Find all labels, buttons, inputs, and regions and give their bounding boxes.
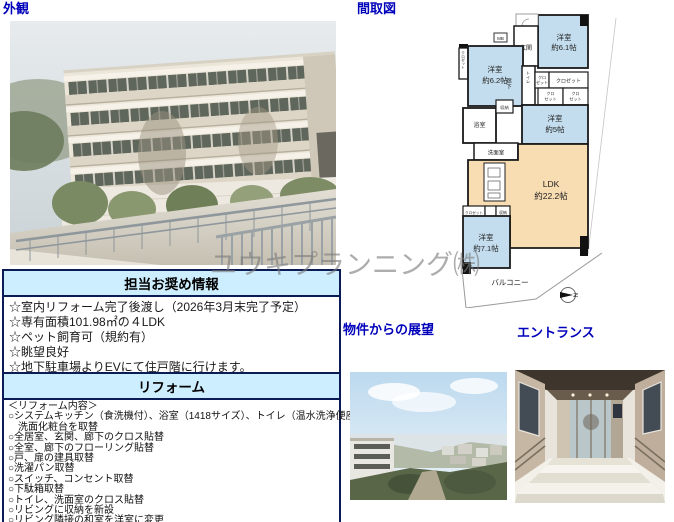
side-panel-left	[557, 400, 570, 458]
kitchen-counter	[484, 163, 505, 201]
porch	[516, 14, 538, 26]
closet-wide-label: クロゼット	[556, 78, 581, 85]
recommend-item: ☆専有面積101.98㎡の４LDK	[9, 315, 334, 330]
site-boundary	[588, 18, 616, 254]
entrance-photo	[515, 370, 665, 503]
right-window	[643, 382, 661, 434]
watermark: ユウキプランニング㈱	[210, 243, 480, 282]
svg-text:収納: 収納	[500, 104, 508, 111]
recommend-list: ☆室内リフォーム完了後渡し（2026年3月末完了予定） ☆専有面積101.98㎡…	[4, 297, 339, 377]
bathroom-label: 浴室	[473, 121, 485, 129]
hallway-label: 廊下	[505, 77, 512, 91]
exterior-photo	[10, 21, 336, 265]
ldk-size: 約22.2帖	[534, 191, 568, 201]
recommend-item: ☆室内リフォーム完了後渡し（2026年3月末完了予定）	[9, 300, 334, 315]
recommend-box: 担当お奨め情報 ☆室内リフォーム完了後渡し（2026年3月末完了予定） ☆専有面…	[2, 269, 341, 379]
mb-label: MB	[497, 36, 504, 41]
entrance-ornament	[583, 414, 599, 430]
reform-box: リフォーム ＜リフォーム内容＞ ○システムキッチン（食洗機付）、浴室（1418サ…	[2, 372, 341, 522]
reform-item: ○リビング隣接の和室を洋室に変更	[8, 516, 335, 522]
recommend-item: ☆眺望良好	[9, 345, 334, 360]
exterior-label: 外観	[3, 2, 29, 16]
bedroom-5-name: 洋室	[548, 113, 563, 123]
view-label: 物件からの展望	[343, 323, 434, 337]
entrance-label: エントランス	[517, 326, 595, 340]
toilet-label: トイレ	[526, 71, 531, 84]
floorplan-label: 間取図	[357, 2, 396, 16]
washroom-label: 洗面室	[488, 149, 505, 157]
bedroom-7-1-name: 洋室	[479, 232, 494, 242]
reform-title: リフォーム	[4, 374, 339, 400]
svg-text:N: N	[572, 293, 578, 297]
closet-left-label: クロゼット	[460, 50, 465, 69]
svg-text:クロゼット: クロゼット	[465, 210, 483, 215]
balcony-label: バルコニー	[491, 278, 528, 287]
bedroom-6-1-name: 洋室	[557, 32, 572, 42]
bedroom-5-size: 約5帖	[545, 124, 565, 134]
view-photo	[350, 372, 507, 500]
property-flyer: 外観 間取図 物件からの展望 エントランス	[0, 0, 674, 522]
ldk-name: LDK	[543, 179, 560, 189]
svg-text:収納: 収納	[499, 209, 507, 215]
recommend-item: ☆ペット飼育可（規約有）	[9, 330, 334, 345]
bedroom-6-1-size: 約6.1帖	[551, 42, 577, 52]
bedroom-6-2-name: 洋室	[488, 64, 503, 74]
left-window	[519, 382, 539, 436]
reform-list: ＜リフォーム内容＞ ○システムキッチン（食洗機付）、浴室（1418サイズ）、トイ…	[4, 400, 339, 522]
north-compass: N	[560, 288, 578, 303]
signage	[613, 404, 622, 418]
